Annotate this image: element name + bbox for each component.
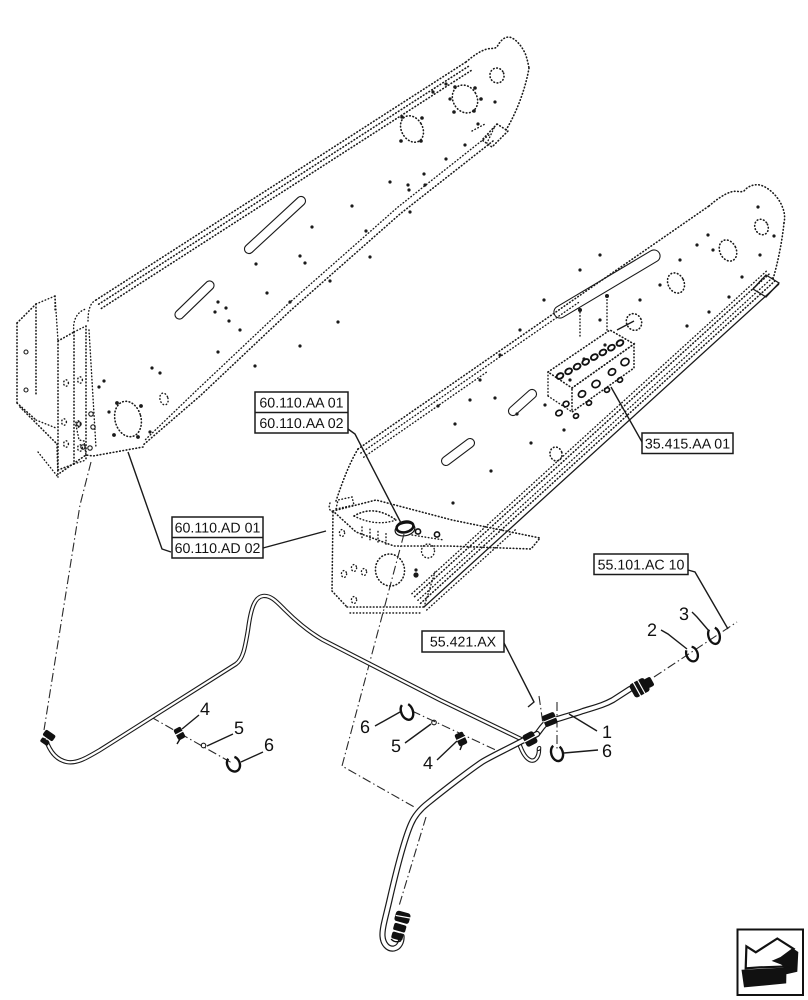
svg-text:35.415.AA 01: 35.415.AA 01 <box>645 436 730 452</box>
svg-text:5: 5 <box>391 736 401 756</box>
svg-text:5: 5 <box>234 718 244 738</box>
svg-text:60.110.AD 01: 60.110.AD 01 <box>175 521 261 537</box>
svg-text:1: 1 <box>602 722 612 742</box>
svg-text:60.110.AD 02: 60.110.AD 02 <box>175 541 261 557</box>
svg-text:6: 6 <box>264 735 274 755</box>
svg-text:4: 4 <box>200 699 210 719</box>
svg-text:6: 6 <box>360 717 370 737</box>
svg-text:6: 6 <box>602 741 612 761</box>
svg-text:4: 4 <box>423 753 433 773</box>
svg-text:60.110.AA 02: 60.110.AA 02 <box>259 416 343 432</box>
svg-text:55.421.AX: 55.421.AX <box>430 635 497 651</box>
svg-text:2: 2 <box>647 620 657 640</box>
svg-text:3: 3 <box>679 604 689 624</box>
svg-text:55.101.AC 10: 55.101.AC 10 <box>598 558 685 574</box>
svg-text:60.110.AA 01: 60.110.AA 01 <box>259 395 343 411</box>
